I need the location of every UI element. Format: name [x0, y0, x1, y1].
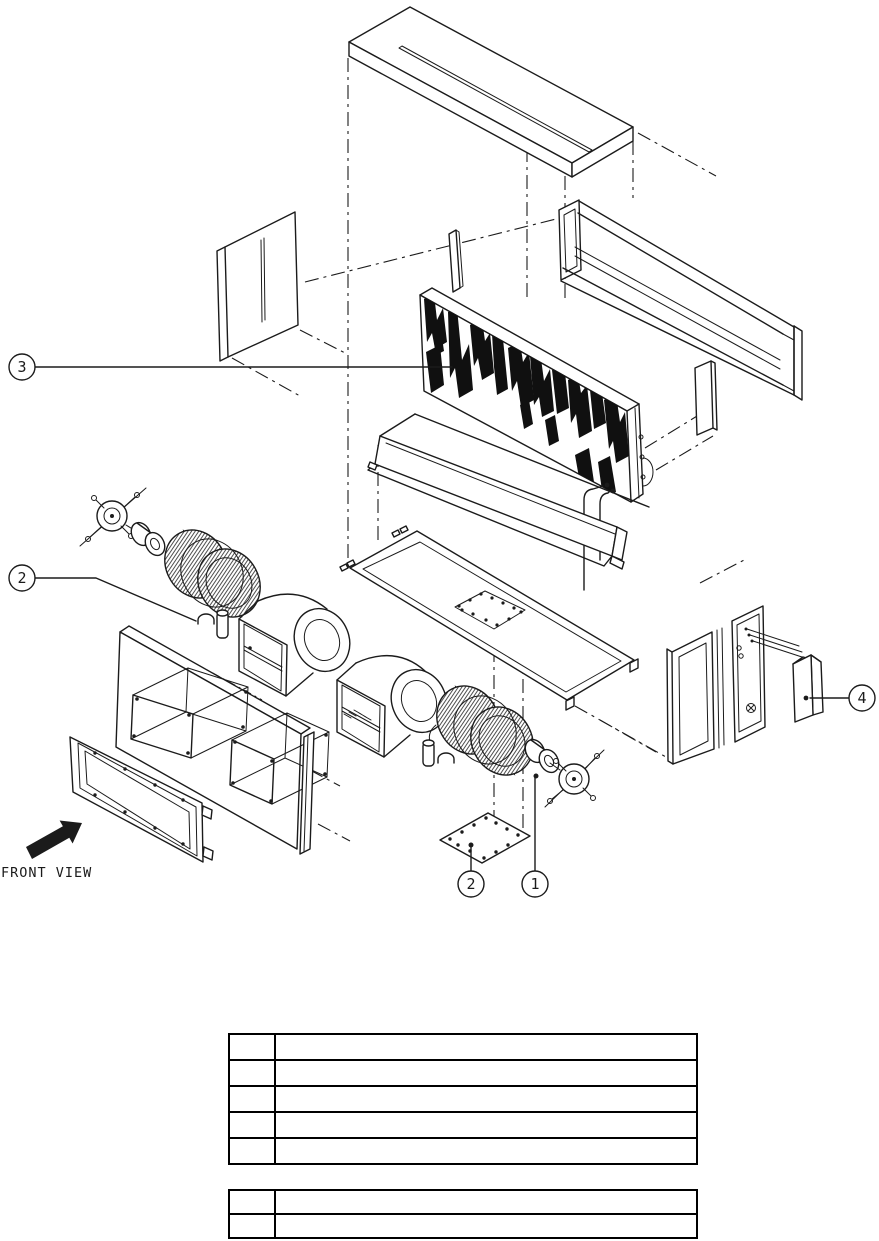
- blower-housing-1: [239, 594, 359, 696]
- front-panel-corner-post: [300, 732, 314, 854]
- callout-2-bottom-label: 2: [466, 875, 475, 893]
- rear-panel-assembly: [667, 606, 805, 764]
- left-clamp: [198, 614, 214, 624]
- table-cell: [275, 1112, 697, 1138]
- callout-1-label: 1: [530, 875, 539, 893]
- lower-clamp: [438, 753, 454, 763]
- left-side-panel: [217, 212, 298, 361]
- table-cell: [229, 1190, 275, 1214]
- table-cell: [229, 1138, 275, 1164]
- table-cell: [275, 1034, 697, 1060]
- mounting-plate: [440, 813, 530, 863]
- table-row: [229, 1214, 697, 1238]
- front-view-indicator: FRONT VIEW: [1, 821, 92, 882]
- callout-4-label: 4: [857, 689, 866, 707]
- table-cell: [229, 1214, 275, 1238]
- callout-3: 3: [9, 354, 452, 380]
- left-capacitor: [217, 610, 228, 638]
- front-view-arrow-icon: [26, 821, 82, 860]
- callout-3-label: 3: [17, 358, 26, 376]
- table-row: [229, 1112, 697, 1138]
- notes-table: [228, 1189, 698, 1239]
- table-cell: [229, 1034, 275, 1060]
- table-cell: [229, 1086, 275, 1112]
- left-blower-wheel: [153, 519, 272, 628]
- parts-list-table: [228, 1033, 698, 1165]
- rear-frame: [559, 200, 802, 400]
- callout-2-left-label: 2: [17, 569, 26, 587]
- electrical-box: [793, 655, 823, 722]
- table-row: [229, 1060, 697, 1086]
- front-view-label: FRONT VIEW: [1, 865, 92, 881]
- table-cell: [229, 1112, 275, 1138]
- fan-deck: [340, 526, 638, 710]
- table-cell: [275, 1190, 697, 1214]
- table-row: [229, 1138, 697, 1164]
- table-cell: [275, 1086, 697, 1112]
- table-cell: [229, 1060, 275, 1086]
- spacer-bar: [449, 230, 463, 292]
- table-cell: [275, 1060, 697, 1086]
- top-panel: [349, 7, 633, 177]
- table-row: [229, 1190, 697, 1214]
- table-row: [229, 1086, 697, 1112]
- lower-shaft-bushing: [521, 736, 562, 776]
- left-shaft-bushing: [127, 519, 168, 559]
- spacer-plate: [695, 361, 717, 435]
- table-cell: [275, 1138, 697, 1164]
- table-cell: [275, 1214, 697, 1238]
- table-row: [229, 1034, 697, 1060]
- document-page: 3 2 2 1 4 FRONT VIEW: [0, 0, 879, 1241]
